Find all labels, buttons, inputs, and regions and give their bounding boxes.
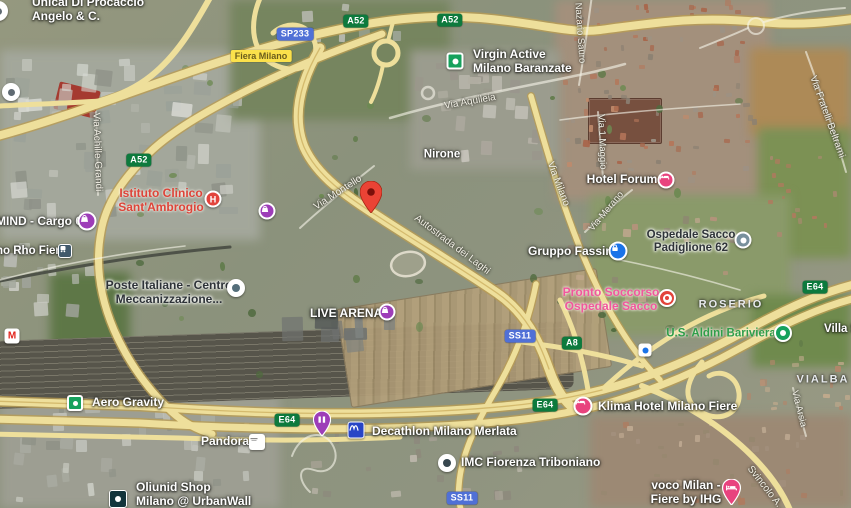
arena-oval: [389, 249, 427, 279]
shopping-bag-icon[interactable]: [78, 212, 97, 231]
car-dealer-icon[interactable]: [609, 242, 628, 261]
poi-label-klima-hotel[interactable]: Klima Hotel Milano Fiere: [598, 400, 737, 414]
route-shield-a52: A52: [126, 154, 151, 167]
sports-icon[interactable]: [774, 324, 792, 342]
route-shield-ss11: SS11: [505, 330, 536, 343]
poi-label-hotel-forum[interactable]: Hotel Forum: [587, 173, 658, 187]
generic-poi-icon[interactable]: [227, 279, 245, 297]
fiera-milano-tag[interactable]: Fiera Milano: [231, 50, 292, 62]
generic-poi-icon[interactable]: [2, 83, 20, 101]
route-shield-a52: A52: [343, 15, 368, 28]
climbing-shop-icon[interactable]: [109, 490, 127, 508]
poi-label-virgin-active[interactable]: Virgin ActiveMilano Baranzate: [473, 48, 572, 76]
poi-label-voco[interactable]: voco Milan -Fiere by IHG: [651, 479, 722, 507]
route-shield-a52: A52: [437, 14, 462, 27]
poi-label-unical[interactable]: Unical Di ProcaccioAngelo & C.: [32, 0, 144, 24]
decathlon-logo-icon[interactable]: [348, 422, 365, 439]
route-shield-ss11: SS11: [447, 492, 478, 505]
road-a52-top: [0, 17, 851, 138]
district-label-nirone: Nirone: [424, 148, 460, 161]
satellite-map[interactable]: SP233 A52 A52 A52 E64 E64 E64 A8 SS11 SS…: [0, 0, 851, 508]
route-shield-sp233: SP233: [277, 28, 314, 41]
generic-poi-icon[interactable]: [735, 232, 752, 249]
aero-gravity-icon[interactable]: [67, 395, 83, 411]
poi-label-ospedale-sacco[interactable]: Ospedale SaccoPadiglione 62: [647, 229, 736, 255]
poi-label-decathlon[interactable]: Decathlon Milano Merlata: [372, 425, 517, 439]
route-shield-e64: E64: [275, 414, 300, 427]
metro-icon[interactable]: M: [5, 329, 20, 344]
poi-label-imc-fiorenza[interactable]: IMC Fiorenza Triboniano: [461, 456, 600, 470]
school-icon[interactable]: [639, 344, 652, 357]
generic-poi-icon[interactable]: [438, 454, 456, 472]
poi-label-aldini[interactable]: U.S. Aldini Bariviera: [666, 327, 776, 340]
district-label-roserio: ROSERIO: [699, 299, 764, 312]
shopping-bag-icon[interactable]: [259, 203, 276, 220]
route-shield-e64: E64: [803, 281, 828, 294]
poi-label-aero-gravity[interactable]: Aero Gravity: [92, 396, 164, 410]
poi-label-live-arena[interactable]: LIVE ARENA: [310, 307, 382, 321]
hotel-icon[interactable]: [658, 172, 675, 189]
hospital-icon[interactable]: H: [205, 191, 222, 208]
poi-label-rho-fiera[interactable]: no Rho Fiera: [0, 245, 66, 258]
poi-label-villa[interactable]: Villa S: [824, 323, 851, 336]
street-label-via-1-maggio: Via 1 Maggio: [595, 114, 608, 170]
emergency-icon[interactable]: [658, 289, 676, 307]
poi-label-poste-italiane[interactable]: Poste Italiane - CentroMeccanizzazione..…: [106, 279, 233, 307]
train-station-icon[interactable]: [58, 244, 72, 258]
poi-label-pandora[interactable]: Pandora: [201, 435, 249, 449]
pandora-logo-icon[interactable]: [249, 434, 265, 450]
poi-label-gruppo-fassina[interactable]: Gruppo Fassina: [528, 245, 619, 259]
hotel-icon[interactable]: [574, 397, 593, 416]
shopping-bag-icon[interactable]: [379, 304, 396, 321]
route-shield-a8: A8: [562, 337, 582, 350]
poi-label-istituto-clinico[interactable]: Istituto ClinicoSant'Ambrogio: [118, 187, 204, 215]
poi-label-mind-cargo[interactable]: MIND - Cargo 6: [0, 215, 82, 229]
poi-label-oliunid[interactable]: Oliunid ShopMilano @ UrbanWall: [136, 481, 251, 508]
virgin-active-icon[interactable]: [447, 53, 464, 70]
route-shield-e64: E64: [533, 399, 558, 412]
district-label-vialba: VIALBA: [797, 374, 850, 387]
poi-label-pronto-soccorso[interactable]: Pronto SoccorsoOspedale Sacco: [563, 286, 660, 314]
